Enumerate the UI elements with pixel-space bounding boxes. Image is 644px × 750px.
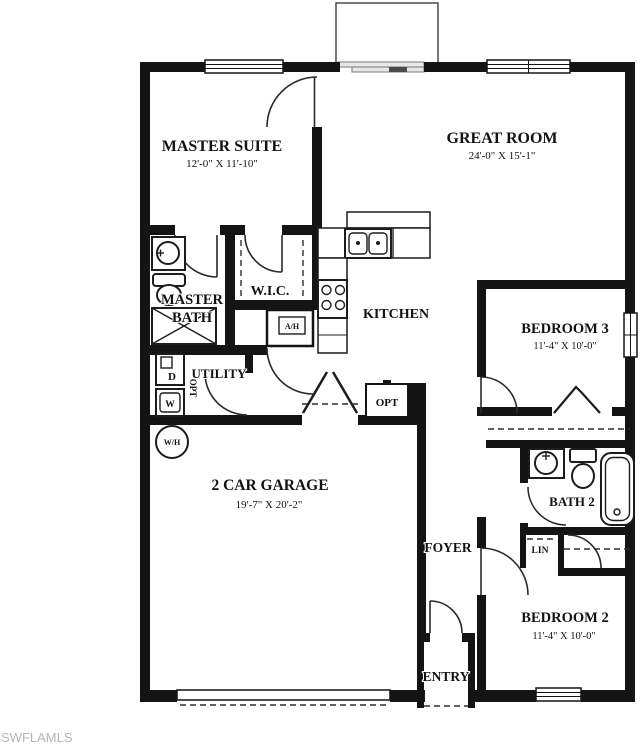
washer-label: W — [165, 400, 175, 410]
window — [624, 313, 637, 357]
master-suite-dims: 12'-0" X 11'-10" — [186, 158, 258, 170]
bedroom3-label: BEDROOM 3 — [521, 321, 608, 337]
wic-label: W.I.C. — [251, 284, 290, 299]
linen-label: LIN — [532, 546, 549, 556]
master-bath-label-line2: BATH — [172, 310, 213, 326]
water-heater-icon: W/H — [156, 426, 188, 458]
stove-icon — [318, 280, 347, 318]
kitchen-bar-counter — [347, 212, 430, 228]
door-arc-air-handler — [267, 348, 313, 394]
bedroom2-label: BEDROOM 2 — [521, 610, 608, 626]
bath2-label: BATH 2 — [549, 494, 595, 509]
dryer-label: D — [168, 371, 176, 383]
bathtub-icon — [601, 453, 634, 525]
garage-double-door — [302, 372, 358, 413]
floor-plan-svg: A/H D W OPT W/H OPT — [0, 0, 644, 750]
garage-dims: 19'-7" X 20'-2" — [236, 499, 303, 511]
kitchen-fixtures — [318, 212, 430, 353]
optional-pantry-box: OPT — [366, 380, 408, 417]
bath2-sink-icon — [529, 449, 564, 478]
washer-icon: W — [156, 389, 184, 416]
optional-side-label: OPT — [188, 379, 198, 398]
bedroom3-closet-bifold — [554, 387, 600, 413]
water-heater-label: W/H — [164, 438, 181, 447]
window — [205, 60, 283, 73]
master-suite-label: MASTER SUITE — [162, 138, 282, 155]
door-arc-bedroom2-closet — [568, 535, 601, 568]
great-room-label: GREAT ROOM — [447, 130, 558, 147]
door-arc-master — [267, 77, 317, 127]
sliding-door-panel — [352, 67, 424, 72]
garage-label: 2 CAR GARAGE — [211, 477, 328, 494]
watermark-text: SWFLAMLS — [1, 730, 73, 745]
door-arc-wic — [245, 235, 282, 272]
optional-pantry-label: OPT — [376, 397, 399, 409]
utility-label: UTILITY — [192, 366, 248, 381]
foyer-label: FOYER — [424, 540, 472, 555]
window — [536, 688, 581, 701]
air-handler-icon: A/H — [267, 310, 313, 346]
sliding-door-handle — [389, 67, 407, 72]
window — [487, 60, 570, 73]
master-bath-label-line1: MASTER — [161, 292, 224, 308]
great-room-dims: 24'-0" X 15'-1" — [469, 150, 536, 162]
kitchen-label: KITCHEN — [363, 307, 429, 322]
kitchen-sink-icon — [345, 229, 391, 258]
dryer-icon: D — [156, 354, 184, 385]
master-bath-sink-icon — [152, 237, 185, 270]
master-bath-fixtures — [152, 237, 216, 344]
entry-label: ENTRY — [423, 669, 470, 684]
bedroom3-dims: 11'-4" X 10'-0" — [533, 341, 596, 352]
sliding-door-panel — [338, 62, 424, 67]
bath2-fixtures — [529, 449, 634, 525]
air-handler-label: A/H — [285, 322, 300, 331]
garage-door — [177, 690, 390, 705]
bedroom2-dims: 11'-4" X 10'-0" — [532, 631, 595, 642]
floor-plan-image: A/H D W OPT W/H OPT — [0, 0, 644, 750]
door-arc-front — [430, 601, 462, 633]
bath2-toilet-icon — [570, 449, 596, 488]
patio-outline — [336, 3, 438, 72]
